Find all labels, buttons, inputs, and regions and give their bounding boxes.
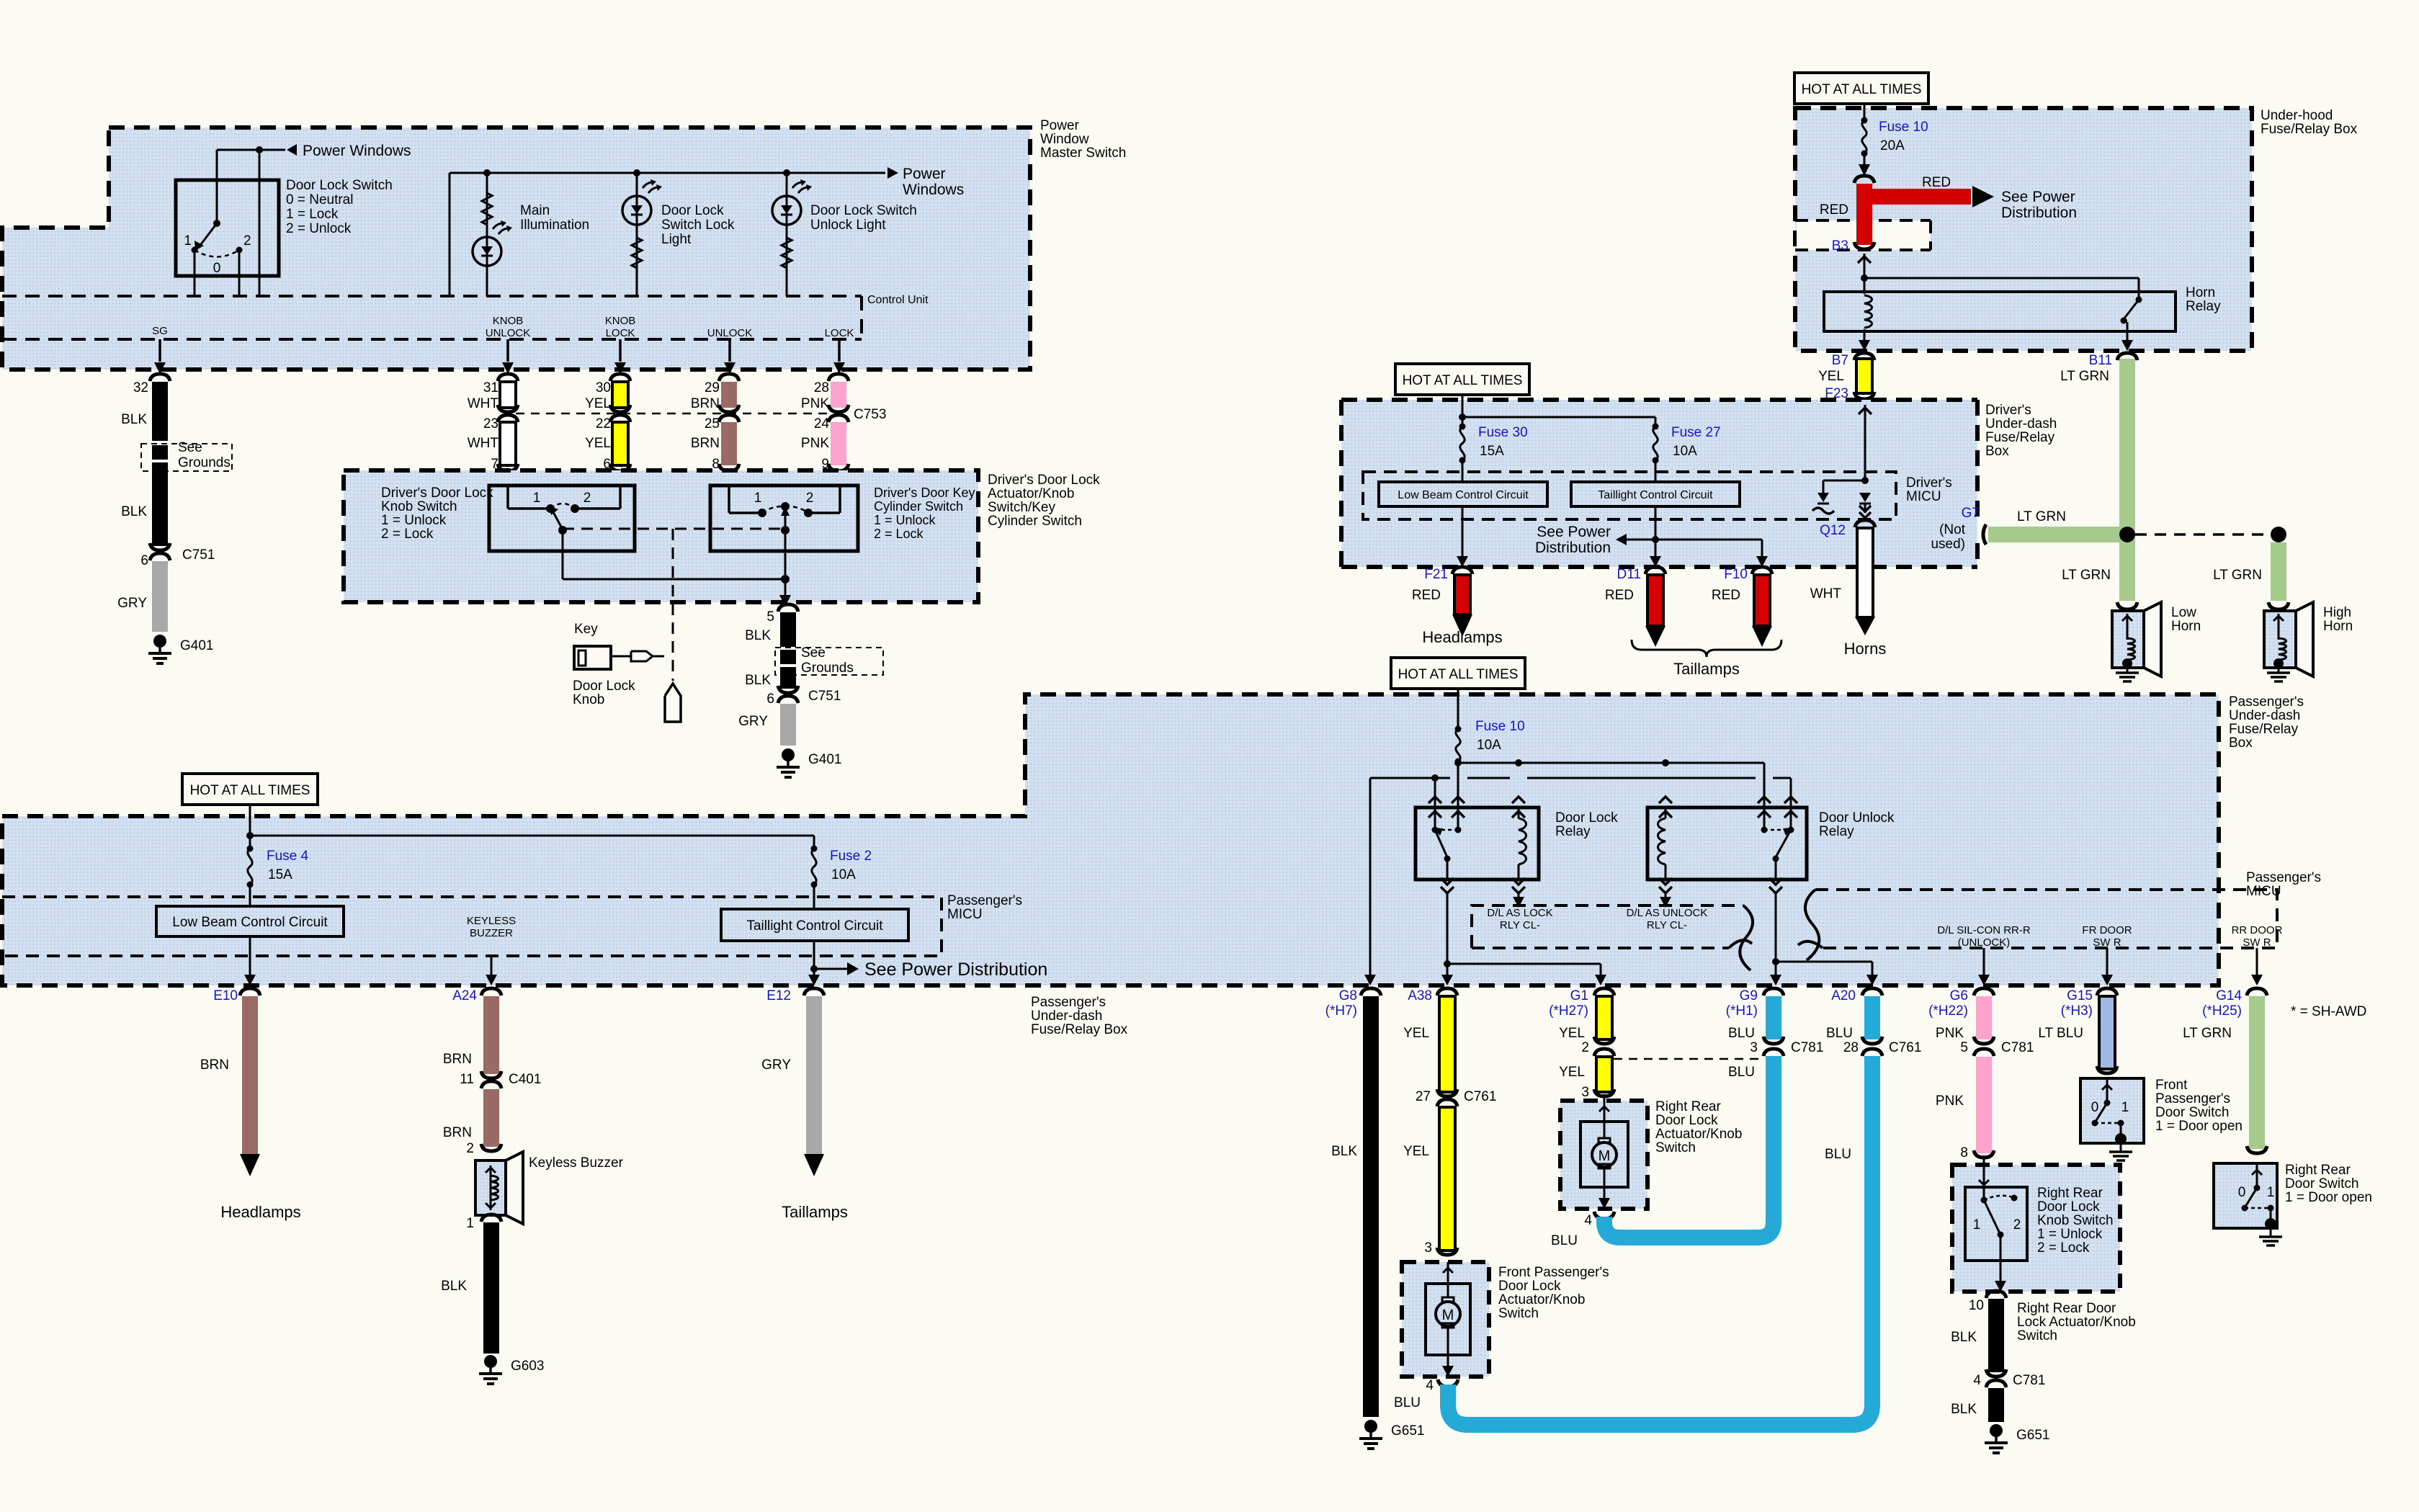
svg-text:G15: G15	[2067, 988, 2093, 1003]
svg-text:15A: 15A	[268, 867, 292, 882]
svg-text:Window: Window	[1040, 132, 1089, 147]
svg-text:Keyless Buzzer: Keyless Buzzer	[529, 1155, 624, 1171]
svg-text:Control Unit: Control Unit	[867, 294, 929, 306]
svg-text:Right Rear: Right Rear	[1655, 1099, 1721, 1114]
svg-text:BLU: BLU	[1826, 1026, 1853, 1041]
svg-text:Horn: Horn	[2186, 285, 2215, 300]
svg-text:MICU: MICU	[947, 907, 983, 922]
svg-text:* = SH-AWD: * = SH-AWD	[2291, 1004, 2366, 1019]
svg-text:See Power: See Power	[2001, 189, 2075, 205]
svg-text:Knob: Knob	[573, 692, 604, 707]
svg-text:Switch Lock: Switch Lock	[661, 218, 735, 233]
svg-text:MICU: MICU	[2246, 884, 2281, 899]
svg-text:Fuse 4: Fuse 4	[267, 849, 309, 864]
svg-text:HOT AT ALL TIMES: HOT AT ALL TIMES	[190, 783, 310, 798]
svg-text:4: 4	[1426, 1378, 1434, 1393]
svg-text:BLK: BLK	[1331, 1144, 1357, 1159]
svg-text:Low Beam Control Circuit: Low Beam Control Circuit	[1398, 489, 1529, 501]
svg-text:LT GRN: LT GRN	[2062, 568, 2111, 583]
svg-text:(*H3): (*H3)	[2061, 1003, 2093, 1019]
svg-text:F10: F10	[1724, 567, 1748, 582]
svg-text:GRY: GRY	[738, 714, 768, 729]
svg-text:20A: 20A	[1880, 138, 1905, 153]
svg-text:24: 24	[814, 416, 830, 431]
svg-text:Driver's Door Key: Driver's Door Key	[874, 486, 975, 500]
svg-text:MICU: MICU	[1906, 489, 1941, 504]
svg-text:Right Rear: Right Rear	[2037, 1186, 2103, 1201]
svg-text:Actuator/Knob: Actuator/Knob	[1655, 1127, 1742, 1142]
svg-text:BLK: BLK	[745, 628, 771, 643]
svg-text:G651: G651	[1391, 1423, 1424, 1439]
svg-text:Q12: Q12	[1820, 523, 1846, 538]
svg-text:6: 6	[140, 553, 148, 568]
svg-text:10: 10	[1969, 1298, 1984, 1313]
svg-text:Main: Main	[520, 203, 550, 218]
svg-text:Windows: Windows	[903, 182, 964, 198]
svg-text:Grounds: Grounds	[178, 455, 231, 470]
svg-text:6: 6	[766, 692, 774, 707]
svg-text:29: 29	[705, 380, 720, 395]
svg-text:RED: RED	[1922, 175, 1951, 190]
svg-text:Passenger's: Passenger's	[2246, 870, 2321, 885]
svg-text:1: 1	[533, 491, 541, 506]
svg-text:Door Lock Switch: Door Lock Switch	[286, 178, 393, 193]
svg-text:1: 1	[2121, 1100, 2129, 1115]
svg-text:15A: 15A	[1480, 444, 1504, 459]
svg-text:Unlock Light: Unlock Light	[810, 218, 886, 233]
svg-text:B11: B11	[2089, 353, 2112, 368]
svg-text:G8: G8	[1339, 988, 1357, 1003]
svg-text:3: 3	[1750, 1040, 1758, 1055]
svg-text:PNK: PNK	[1936, 1026, 1964, 1041]
svg-text:Under-hood: Under-hood	[2261, 108, 2333, 123]
svg-text:2: 2	[2013, 1217, 2021, 1233]
svg-text:Cylinder Switch: Cylinder Switch	[988, 514, 1082, 529]
svg-text:Fuse/Relay: Fuse/Relay	[1985, 430, 2055, 445]
svg-text:(UNLOCK): (UNLOCK)	[1958, 936, 2011, 949]
svg-text:Under-dash: Under-dash	[1985, 416, 2057, 431]
svg-text:See: See	[801, 645, 826, 661]
svg-text:3: 3	[1581, 1085, 1589, 1100]
svg-text:1 = Door open: 1 = Door open	[2155, 1119, 2243, 1134]
svg-text:G651: G651	[2016, 1428, 2049, 1443]
svg-text:Actuator/Knob: Actuator/Knob	[1498, 1292, 1585, 1307]
svg-text:0 = Neutral: 0 = Neutral	[286, 192, 353, 207]
svg-text:2 = Lock: 2 = Lock	[2037, 1240, 2090, 1256]
svg-text:2: 2	[1581, 1040, 1589, 1055]
svg-text:(Not: (Not	[1939, 522, 1966, 537]
svg-text:BRN: BRN	[443, 1125, 472, 1140]
svg-text:28: 28	[814, 380, 829, 395]
svg-text:D/L AS LOCK: D/L AS LOCK	[1487, 907, 1552, 919]
svg-text:Door Lock Switch: Door Lock Switch	[810, 203, 917, 218]
svg-text:0: 0	[2238, 1185, 2246, 1200]
svg-text:27: 27	[1416, 1089, 1431, 1104]
svg-text:YEL: YEL	[1403, 1026, 1429, 1041]
svg-text:used): used)	[1931, 537, 1965, 552]
svg-text:2 = Lock: 2 = Lock	[381, 527, 434, 542]
svg-text:10A: 10A	[1673, 444, 1697, 459]
svg-text:G14: G14	[2216, 988, 2242, 1003]
svg-text:Door Lock: Door Lock	[573, 679, 635, 694]
svg-text:C753: C753	[854, 407, 886, 422]
svg-text:D/L SIL-CON RR-R: D/L SIL-CON RR-R	[1937, 924, 2031, 936]
svg-text:C761: C761	[1464, 1089, 1496, 1104]
svg-text:2: 2	[243, 233, 251, 249]
svg-text:Illumination: Illumination	[520, 218, 589, 233]
svg-text:BLK: BLK	[1951, 1402, 1977, 1417]
svg-text:G7: G7	[1962, 506, 1980, 521]
svg-text:0: 0	[2091, 1100, 2099, 1115]
svg-text:1: 1	[466, 1216, 474, 1231]
svg-text:G6: G6	[1950, 988, 1968, 1003]
svg-text:BLK: BLK	[1951, 1330, 1977, 1345]
svg-text:10A: 10A	[831, 867, 856, 882]
svg-text:4: 4	[1584, 1213, 1592, 1228]
svg-text:GRY: GRY	[761, 1057, 791, 1073]
svg-text:Knob Switch: Knob Switch	[381, 499, 457, 514]
svg-text:G1: G1	[1570, 988, 1588, 1003]
svg-text:Relay: Relay	[2186, 299, 2221, 314]
svg-text:HOT AT ALL TIMES: HOT AT ALL TIMES	[1398, 667, 1519, 682]
svg-text:2: 2	[806, 491, 814, 506]
svg-text:BLU: BLU	[1551, 1233, 1578, 1248]
svg-text:WHT: WHT	[1810, 586, 1842, 601]
svg-text:Grounds: Grounds	[801, 661, 854, 676]
svg-text:C781: C781	[1791, 1040, 1823, 1055]
svg-text:1 = Door open: 1 = Door open	[2285, 1190, 2372, 1205]
svg-text:2 = Unlock: 2 = Unlock	[286, 221, 352, 236]
svg-text:BRN: BRN	[691, 396, 720, 411]
svg-text:Horn: Horn	[2323, 619, 2353, 634]
svg-text:8: 8	[1960, 1145, 1968, 1160]
svg-text:Taillight Control Circuit: Taillight Control Circuit	[1598, 489, 1713, 501]
svg-text:Fuse/Relay Box: Fuse/Relay Box	[2261, 122, 2358, 137]
svg-text:Passenger's: Passenger's	[2155, 1091, 2230, 1106]
svg-text:Taillamps: Taillamps	[782, 1203, 848, 1221]
svg-text:Driver's: Driver's	[1906, 475, 1952, 491]
svg-text:Fuse 30: Fuse 30	[1478, 425, 1528, 440]
svg-text:Taillamps: Taillamps	[1673, 660, 1740, 678]
svg-text:BLK: BLK	[441, 1279, 467, 1294]
svg-text:2 = Lock: 2 = Lock	[874, 527, 924, 541]
svg-text:RR DOOR: RR DOOR	[2232, 924, 2283, 936]
svg-text:Door Lock: Door Lock	[1655, 1113, 1718, 1128]
svg-text:RED: RED	[1605, 588, 1634, 603]
svg-text:A24: A24	[452, 988, 477, 1003]
svg-text:Horn: Horn	[2171, 619, 2201, 634]
svg-text:GRY: GRY	[117, 596, 147, 611]
svg-text:28: 28	[1843, 1040, 1859, 1055]
svg-text:LT GRN: LT GRN	[2213, 568, 2262, 583]
svg-text:Door Lock: Door Lock	[2037, 1199, 2100, 1214]
svg-text:YEL: YEL	[1403, 1144, 1429, 1159]
svg-text:See Power: See Power	[1537, 524, 1611, 540]
svg-text:YEL: YEL	[585, 396, 611, 411]
svg-text:Knob Switch: Knob Switch	[2037, 1213, 2114, 1228]
svg-text:Power: Power	[903, 166, 946, 182]
svg-text:A38: A38	[1408, 988, 1432, 1003]
svg-text:Low: Low	[2171, 605, 2196, 620]
svg-text:M: M	[1442, 1307, 1454, 1323]
svg-text:G401: G401	[180, 638, 213, 653]
svg-text:C781: C781	[2013, 1373, 2045, 1388]
svg-text:Passenger's: Passenger's	[947, 893, 1022, 908]
svg-text:0: 0	[213, 261, 221, 276]
svg-text:(*H27): (*H27)	[1549, 1003, 1588, 1019]
svg-text:G401: G401	[808, 752, 841, 767]
svg-text:YEL: YEL	[585, 436, 611, 451]
svg-text:HOT AT ALL TIMES: HOT AT ALL TIMES	[1403, 373, 1523, 388]
svg-text:Distribution: Distribution	[1535, 540, 1611, 556]
svg-text:Switch: Switch	[1498, 1306, 1539, 1321]
svg-text:Box: Box	[2229, 735, 2253, 751]
svg-text:KNOB: KNOB	[493, 315, 524, 327]
svg-text:A20: A20	[1831, 988, 1856, 1003]
svg-text:LT GRN: LT GRN	[2183, 1026, 2232, 1041]
svg-text:2: 2	[466, 1141, 474, 1156]
svg-text:LOCK: LOCK	[825, 327, 854, 339]
svg-text:Right Rear Door: Right Rear Door	[2017, 1301, 2116, 1316]
svg-text:YEL: YEL	[1818, 369, 1844, 384]
svg-text:C401: C401	[509, 1072, 541, 1087]
svg-text:Key: Key	[574, 622, 598, 637]
svg-text:RLY CL-: RLY CL-	[1500, 919, 1540, 931]
svg-text:Cylinder Switch: Cylinder Switch	[874, 499, 963, 514]
svg-text:Headlamps: Headlamps	[220, 1203, 300, 1221]
svg-text:PNK: PNK	[801, 436, 829, 451]
svg-text:Box: Box	[1985, 444, 2009, 459]
svg-text:Passenger's: Passenger's	[1031, 995, 1106, 1010]
svg-text:5: 5	[766, 609, 774, 625]
svg-text:C751: C751	[808, 689, 841, 704]
svg-text:C761: C761	[1889, 1040, 1921, 1055]
svg-text:D11: D11	[1617, 567, 1641, 582]
svg-text:Headlamps: Headlamps	[1422, 628, 1502, 646]
svg-text:YEL: YEL	[1559, 1026, 1585, 1041]
svg-text:1 = Lock: 1 = Lock	[286, 207, 339, 222]
svg-text:1: 1	[2267, 1185, 2275, 1200]
svg-text:1 = Unlock: 1 = Unlock	[2037, 1227, 2103, 1242]
svg-text:11: 11	[460, 1072, 474, 1087]
svg-text:Front: Front	[2155, 1078, 2188, 1093]
svg-text:Relay: Relay	[1819, 824, 1854, 839]
svg-text:1 = Unlock: 1 = Unlock	[381, 513, 447, 528]
svg-text:Power Windows: Power Windows	[303, 143, 411, 159]
svg-text:See: See	[178, 440, 202, 455]
svg-text:BLU: BLU	[1825, 1147, 1851, 1162]
svg-text:SW R: SW R	[2243, 936, 2271, 949]
svg-text:22: 22	[596, 416, 611, 431]
svg-text:10A: 10A	[1477, 738, 1501, 753]
svg-text:See Power Distribution: See Power Distribution	[864, 959, 1047, 980]
svg-text:5: 5	[1960, 1040, 1968, 1055]
svg-text:Under-dash: Under-dash	[2229, 708, 2300, 723]
svg-text:E10: E10	[213, 988, 238, 1003]
svg-text:Taillight Control Circuit: Taillight Control Circuit	[746, 918, 883, 934]
svg-text:WHT: WHT	[468, 436, 499, 451]
svg-text:BLU: BLU	[1394, 1395, 1421, 1410]
svg-text:31: 31	[483, 380, 498, 395]
svg-text:Fuse/Relay Box: Fuse/Relay Box	[1031, 1022, 1128, 1037]
svg-text:Fuse/Relay: Fuse/Relay	[2229, 722, 2299, 737]
svg-text:1 = Unlock: 1 = Unlock	[874, 513, 936, 527]
svg-text:LT GRN: LT GRN	[2017, 509, 2066, 524]
svg-text:23: 23	[483, 416, 498, 431]
svg-text:YEL: YEL	[1559, 1065, 1585, 1080]
svg-text:Actuator/Knob: Actuator/Knob	[988, 486, 1074, 501]
svg-text:Driver's Door Lock: Driver's Door Lock	[988, 473, 1100, 488]
svg-text:HOT AT ALL TIMES: HOT AT ALL TIMES	[1802, 82, 1922, 97]
svg-text:3: 3	[1424, 1240, 1432, 1256]
svg-text:30: 30	[596, 380, 611, 395]
svg-text:1: 1	[1973, 1217, 1981, 1233]
svg-text:8: 8	[712, 457, 720, 472]
svg-text:4: 4	[1973, 1373, 1981, 1388]
svg-text:Door Switch: Door Switch	[2285, 1176, 2358, 1191]
svg-text:SW R: SW R	[2093, 936, 2121, 949]
svg-text:E12: E12	[766, 988, 791, 1003]
svg-text:BRN: BRN	[691, 436, 720, 451]
svg-text:Lock Actuator/Knob: Lock Actuator/Knob	[2017, 1315, 2136, 1330]
svg-text:Under-dash: Under-dash	[1031, 1008, 1102, 1024]
svg-text:BLU: BLU	[1728, 1065, 1755, 1080]
svg-text:High: High	[2323, 605, 2351, 620]
svg-text:KEYLESS: KEYLESS	[467, 915, 516, 927]
svg-text:(*H22): (*H22)	[1928, 1003, 1968, 1019]
svg-text:RED: RED	[1820, 202, 1848, 218]
svg-text:Door Lock: Door Lock	[661, 203, 724, 218]
svg-text:BLK: BLK	[121, 412, 147, 427]
svg-text:LT GRN: LT GRN	[2060, 369, 2109, 384]
svg-text:Horns: Horns	[1844, 640, 1887, 658]
svg-text:Passenger's: Passenger's	[2229, 694, 2304, 710]
svg-text:(*H25): (*H25)	[2202, 1003, 2242, 1019]
svg-text:Fuse 27: Fuse 27	[1671, 425, 1721, 440]
svg-text:Fuse 10: Fuse 10	[1879, 120, 1928, 135]
svg-text:FR DOOR: FR DOOR	[2082, 924, 2132, 936]
svg-text:BRN: BRN	[200, 1057, 229, 1073]
svg-text:Door Unlock: Door Unlock	[1819, 810, 1895, 826]
svg-text:BLU: BLU	[1728, 1026, 1755, 1041]
svg-text:Switch: Switch	[1655, 1140, 1696, 1155]
svg-text:Driver's: Driver's	[1985, 403, 2031, 418]
svg-text:G603: G603	[511, 1359, 544, 1374]
svg-text:B7: B7	[1832, 353, 1848, 368]
svg-text:F21: F21	[1424, 567, 1448, 582]
svg-text:Relay: Relay	[1555, 824, 1591, 839]
svg-text:BLK: BLK	[121, 504, 147, 519]
svg-text:G9: G9	[1740, 988, 1758, 1003]
svg-text:BUZZER: BUZZER	[470, 927, 513, 939]
svg-text:B3: B3	[1832, 238, 1848, 254]
svg-text:Right Rear: Right Rear	[2285, 1163, 2351, 1178]
svg-text:LT BLU: LT BLU	[2038, 1026, 2083, 1041]
svg-text:PNK: PNK	[1936, 1093, 1964, 1109]
svg-text:Switch: Switch	[2017, 1328, 2057, 1343]
svg-text:Driver's Door Lock: Driver's Door Lock	[381, 486, 493, 501]
svg-text:2: 2	[583, 491, 591, 506]
svg-text:UNLOCK: UNLOCK	[486, 327, 531, 339]
svg-text:Front Passenger's: Front Passenger's	[1498, 1265, 1609, 1280]
svg-text:1: 1	[754, 491, 762, 506]
svg-text:LOCK: LOCK	[606, 327, 635, 339]
svg-text:UNLOCK: UNLOCK	[707, 327, 753, 339]
svg-text:Door Lock: Door Lock	[1498, 1279, 1561, 1294]
svg-text:M: M	[1598, 1148, 1611, 1164]
svg-text:Light: Light	[661, 232, 692, 247]
svg-text:KNOB: KNOB	[605, 315, 636, 327]
svg-text:SG: SG	[152, 325, 168, 337]
svg-text:Fuse 2: Fuse 2	[830, 849, 872, 864]
svg-text:C781: C781	[2001, 1040, 2034, 1055]
svg-text:BRN: BRN	[443, 1052, 472, 1067]
svg-text:32: 32	[133, 380, 148, 395]
svg-text:1: 1	[184, 233, 192, 249]
svg-text:Fuse 10: Fuse 10	[1475, 719, 1525, 734]
svg-text:C751: C751	[182, 547, 215, 563]
svg-text:Door Switch: Door Switch	[2155, 1105, 2229, 1120]
svg-text:RED: RED	[1712, 588, 1740, 603]
svg-text:25: 25	[705, 416, 720, 431]
svg-text:WHT: WHT	[468, 396, 499, 411]
svg-text:RED: RED	[1412, 588, 1441, 603]
svg-text:Door Lock: Door Lock	[1555, 810, 1618, 826]
svg-text:Master Switch: Master Switch	[1040, 146, 1126, 161]
svg-text:RLY CL-: RLY CL-	[1647, 919, 1687, 931]
svg-text:Distribution: Distribution	[2001, 205, 2077, 221]
svg-text:Low Beam Control Circuit: Low Beam Control Circuit	[172, 915, 328, 930]
svg-text:Switch/Key: Switch/Key	[988, 500, 1055, 515]
svg-text:(*H7): (*H7)	[1325, 1003, 1357, 1019]
svg-text:(*H1): (*H1)	[1726, 1003, 1758, 1019]
svg-text:BLK: BLK	[745, 673, 771, 688]
svg-text:PNK: PNK	[801, 396, 829, 411]
svg-text:Power: Power	[1040, 118, 1080, 133]
svg-text:D/L AS UNLOCK: D/L AS UNLOCK	[1627, 907, 1708, 919]
